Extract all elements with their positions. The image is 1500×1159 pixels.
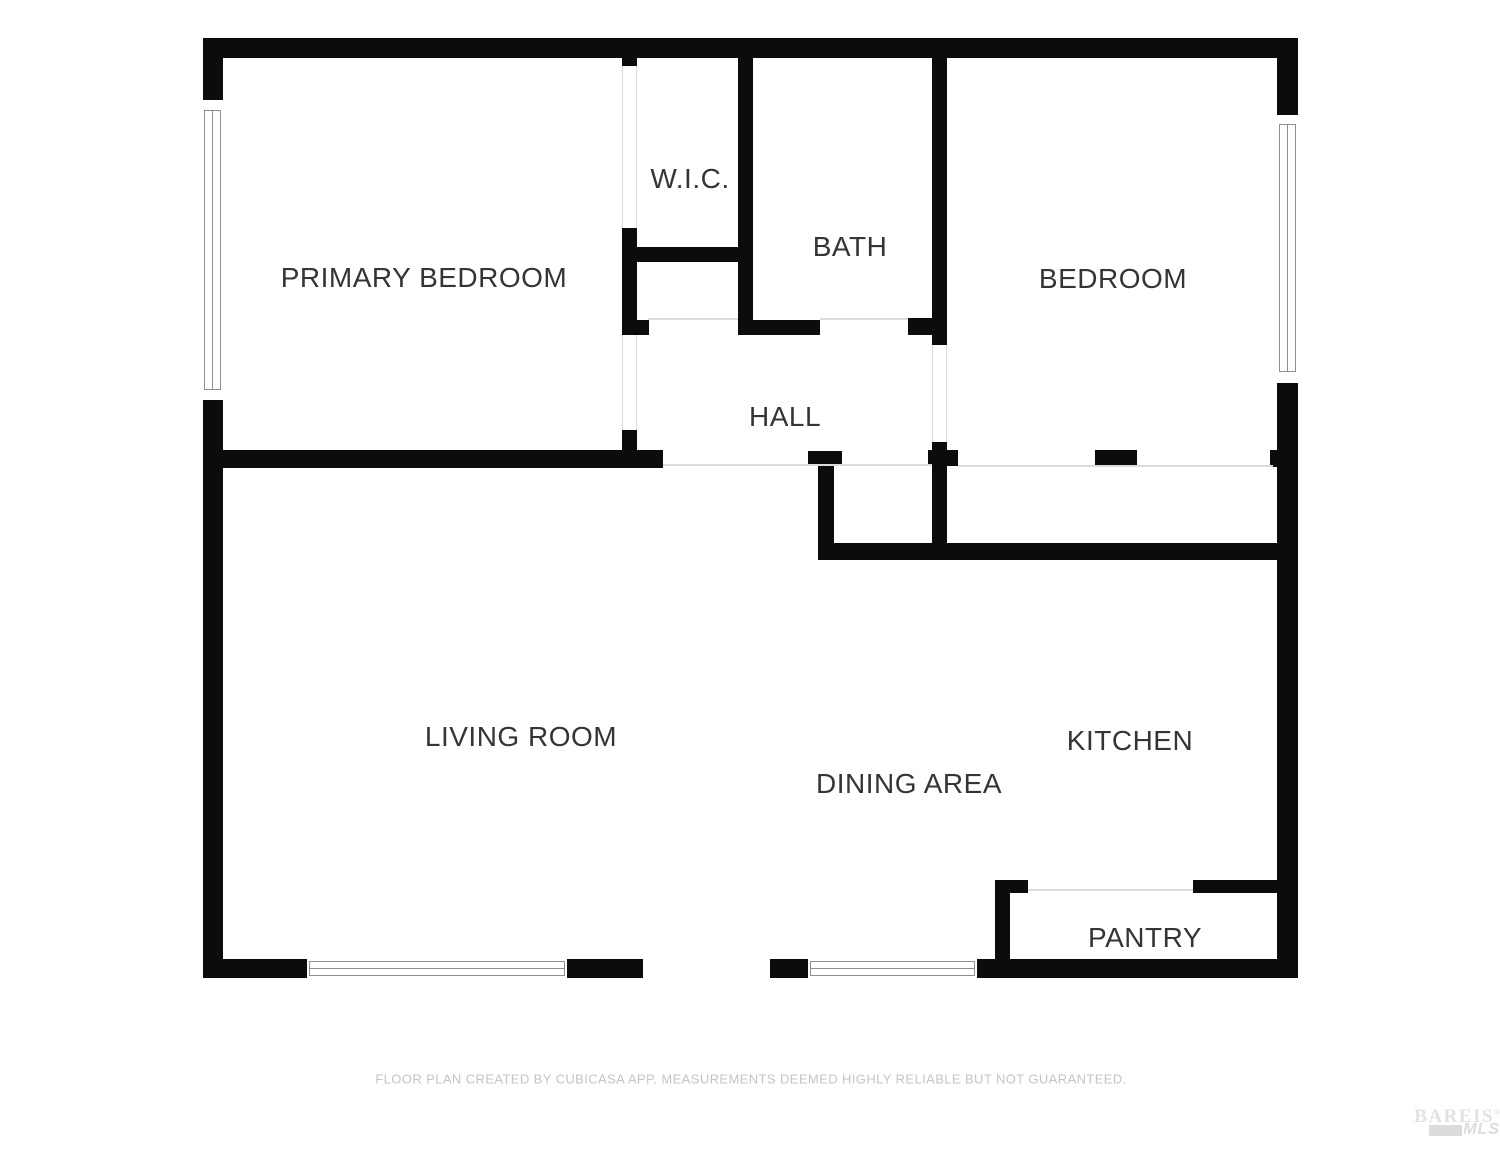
window-pane-line: [212, 111, 214, 389]
window-pane-line: [1287, 125, 1289, 371]
opening-bedroom-door: [932, 345, 947, 442]
wic-left-wall: [622, 228, 637, 335]
window-dining-area: [810, 961, 975, 976]
window-living-room: [309, 961, 565, 976]
exterior-wall-bottom-seg4: [977, 959, 1298, 978]
primary-bedroom-south-wall: [203, 450, 663, 468]
footer-disclaimer: FLOOR PLAN CREATED BY CUBICASA APP. MEAS…: [375, 1072, 1126, 1087]
opening-bath-door: [820, 318, 908, 320]
exterior-wall-bottom-seg2: [567, 959, 643, 978]
pantry-north-wall-right: [1193, 880, 1277, 893]
watermark-bar-icon: [1429, 1125, 1462, 1136]
exterior-wall-bottom-seg1: [203, 959, 307, 978]
room-label-living-room: LIVING ROOM: [425, 721, 617, 753]
bath-south-wall-left: [738, 320, 820, 335]
opening-hall-to-living: [663, 464, 932, 466]
wic-south-wall: [622, 247, 753, 262]
room-label-hall: HALL: [749, 401, 821, 433]
opening-pantry-door: [1028, 889, 1193, 891]
floor-plan-page: PRIMARY BEDROOM W.I.C. BATH BEDROOM HALL…: [0, 0, 1500, 1159]
window-pane-line: [310, 968, 564, 970]
room-label-wic: W.I.C.: [650, 163, 729, 195]
exterior-wall-top: [203, 38, 1298, 58]
bath-bedroom-divider-wall: [932, 57, 947, 345]
exterior-wall-left-lower: [203, 400, 223, 978]
wic-bath-divider-wall: [738, 57, 753, 335]
primary-bedroom-door-stub: [622, 430, 637, 451]
room-label-primary-bedroom: PRIMARY BEDROOM: [281, 262, 568, 294]
opening-wic-closet: [622, 66, 637, 228]
room-label-pantry: PANTRY: [1088, 922, 1202, 954]
hall-closet-right-wall-cap: [928, 450, 958, 466]
bedroom-closet-wall-segment: [1095, 450, 1137, 466]
opening-bedroom-closet: [958, 465, 1273, 467]
opening-primary-bedroom-door: [622, 335, 637, 430]
wic-left-wall-foot: [622, 320, 649, 335]
exterior-wall-right-lower: [1277, 383, 1298, 978]
kitchen-north-wall: [818, 543, 1297, 560]
watermark-sub-brand: MLS: [1463, 1122, 1500, 1138]
window-left-wall: [204, 110, 221, 390]
exterior-wall-bottom-seg3: [770, 959, 808, 978]
registered-mark-icon: ®: [1494, 1108, 1500, 1117]
opening-hall-nook: [648, 318, 738, 320]
window-right-wall: [1279, 124, 1296, 372]
window-pane-line: [811, 968, 974, 970]
exterior-wall-left-upper: [203, 38, 223, 100]
bareis-mls-watermark: BAREIS® MLS: [1412, 1107, 1500, 1138]
room-label-dining-area: DINING AREA: [816, 768, 1002, 800]
exterior-wall-right-upper: [1277, 38, 1298, 115]
room-label-bath: BATH: [813, 231, 888, 263]
pantry-north-wall-left: [995, 880, 1028, 893]
room-label-kitchen: KITCHEN: [1067, 725, 1193, 757]
room-label-bedroom: BEDROOM: [1039, 263, 1187, 295]
